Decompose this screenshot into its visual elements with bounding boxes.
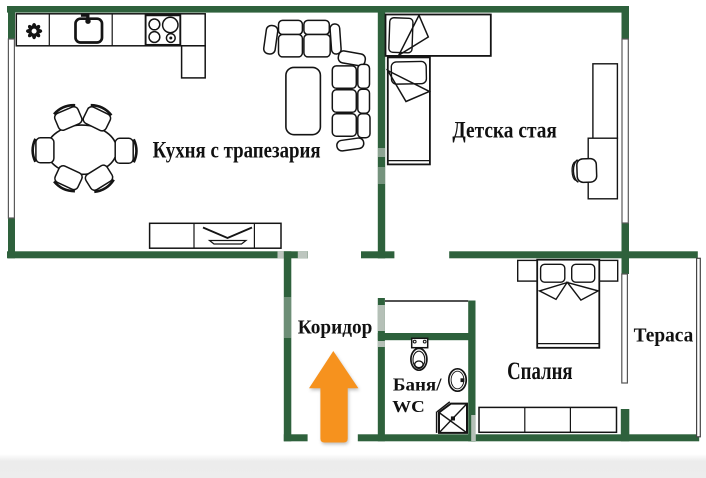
svg-text:Баня/: Баня/	[393, 374, 443, 394]
svg-text:Коридор: Коридор	[298, 317, 373, 338]
svg-text:WC: WC	[392, 397, 425, 416]
svg-text:Детска стая: Детска стая	[452, 118, 557, 144]
svg-text:Кухня с трапезария: Кухня с трапезария	[153, 138, 321, 163]
svg-text:Спалня: Спалня	[507, 358, 572, 385]
svg-text:Тераса: Тераса	[634, 325, 694, 347]
